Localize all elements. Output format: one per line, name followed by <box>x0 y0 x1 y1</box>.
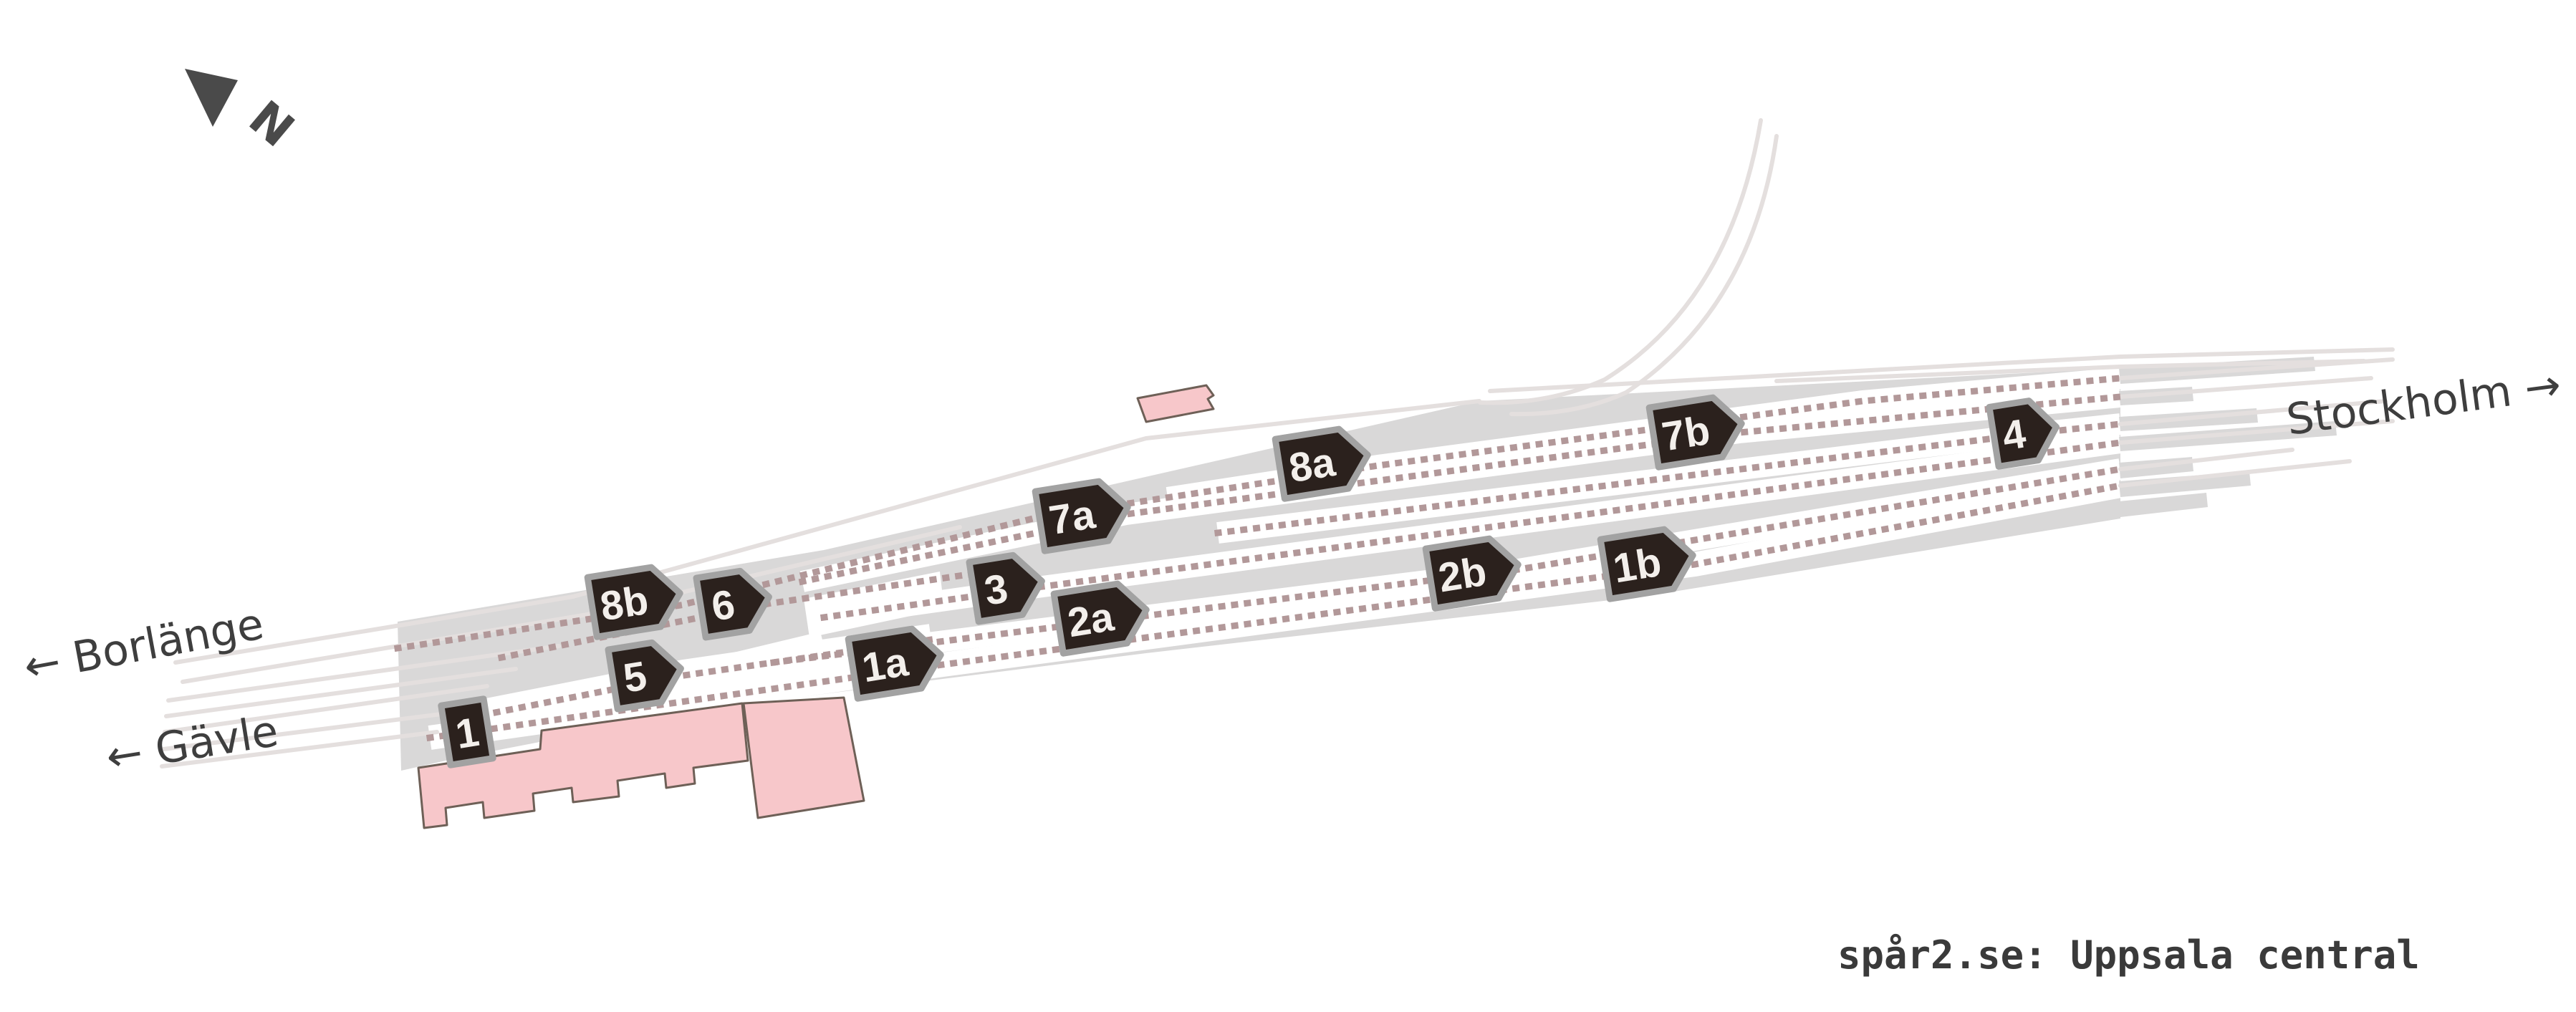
station-annex-building <box>744 698 864 818</box>
direction-label-borlange: ← Borlänge <box>20 599 267 692</box>
platform-marker-text: 2a <box>1064 594 1118 646</box>
north-arrow-icon <box>185 69 238 127</box>
compass: N <box>185 69 304 158</box>
small-trackside-building <box>1138 385 1213 422</box>
platform-marker-text: 7a <box>1046 491 1099 544</box>
platform-marker-text: 1a <box>859 639 912 691</box>
north-label: N <box>239 90 304 158</box>
platform-marker-text: 7b <box>1659 408 1714 461</box>
platform-marker-text: 8a <box>1286 439 1339 491</box>
platform-marker-text: 1b <box>1610 539 1665 592</box>
watermark-caption: spår2.se: Uppsala central <box>1837 933 2420 978</box>
direction-label-stockholm: Stockholm → <box>2284 360 2564 445</box>
platform-marker-text: 2b <box>1436 549 1490 602</box>
direction-label-gavle: ← Gävle <box>102 706 282 783</box>
platform-marker-text: 8b <box>597 577 652 630</box>
platform-marker-1: 1 <box>441 699 493 765</box>
page: 158b61a32a7a8a2b1b7b4 N ← Borlänge ← Gäv… <box>0 0 2576 1012</box>
station-track-map: 158b61a32a7a8a2b1b7b4 N ← Borlänge ← Gäv… <box>0 0 2576 1012</box>
